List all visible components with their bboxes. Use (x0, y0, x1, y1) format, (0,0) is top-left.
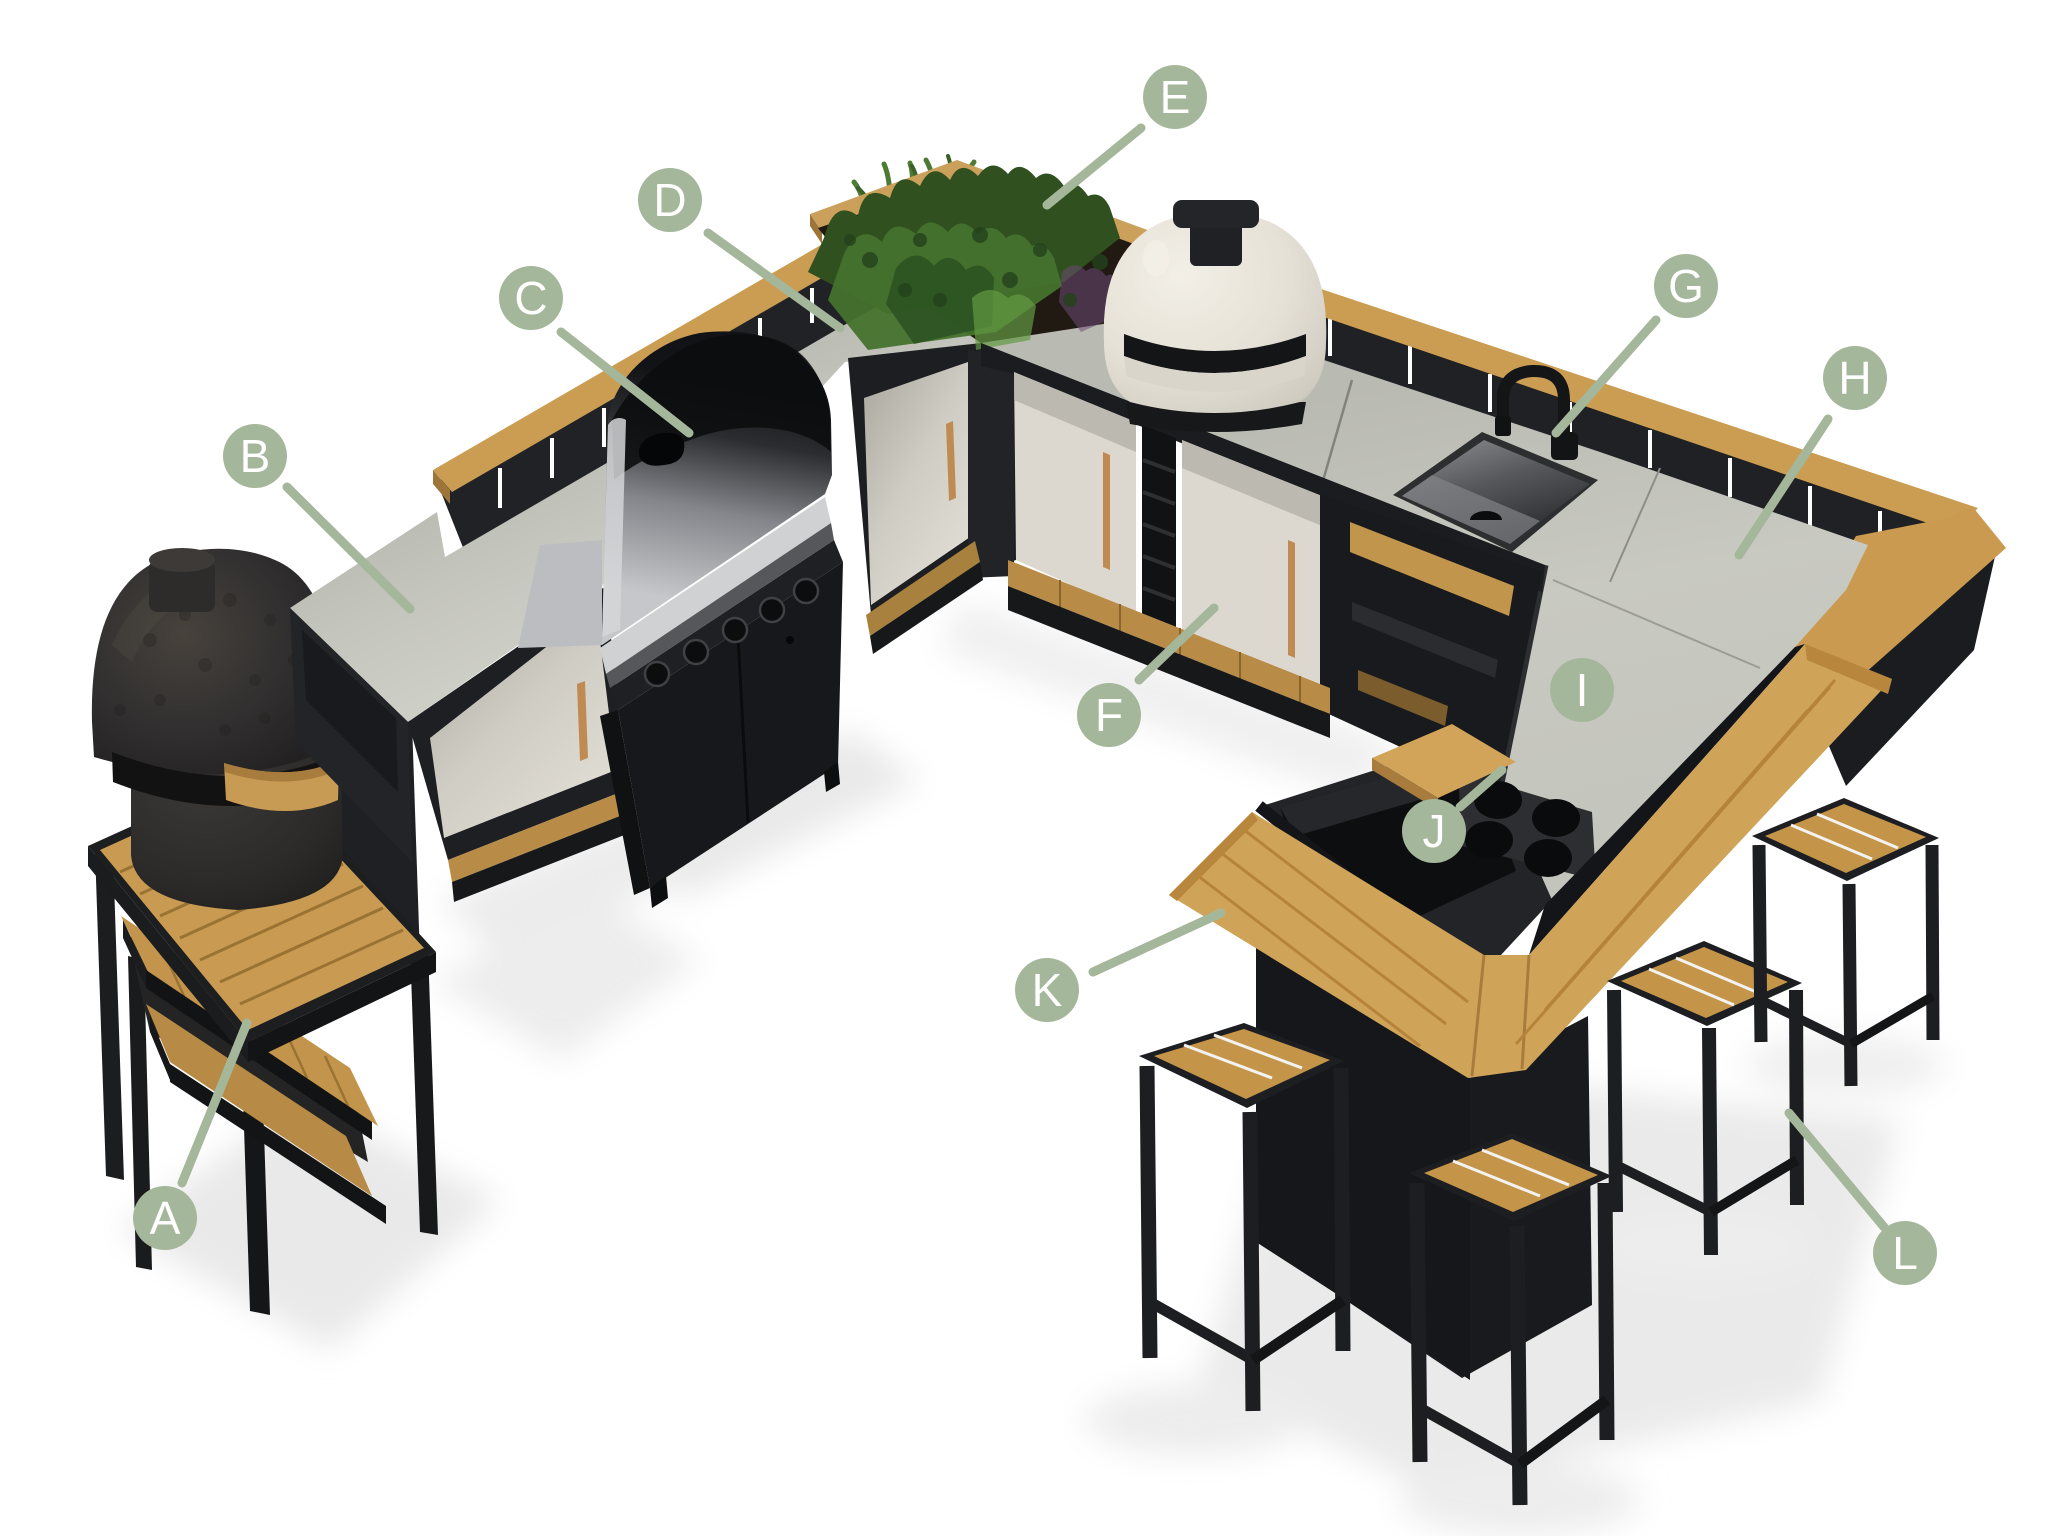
svg-text:E: E (1160, 71, 1191, 123)
svg-text:F: F (1095, 689, 1123, 741)
svg-text:K: K (1032, 964, 1063, 1016)
svg-text:H: H (1838, 352, 1871, 404)
svg-text:I: I (1576, 664, 1589, 716)
svg-text:D: D (653, 174, 686, 226)
svg-text:G: G (1668, 260, 1704, 312)
svg-text:B: B (240, 430, 271, 482)
svg-text:J: J (1423, 805, 1446, 857)
svg-text:A: A (150, 1192, 181, 1244)
svg-text:L: L (1892, 1227, 1918, 1279)
svg-text:C: C (514, 272, 547, 324)
